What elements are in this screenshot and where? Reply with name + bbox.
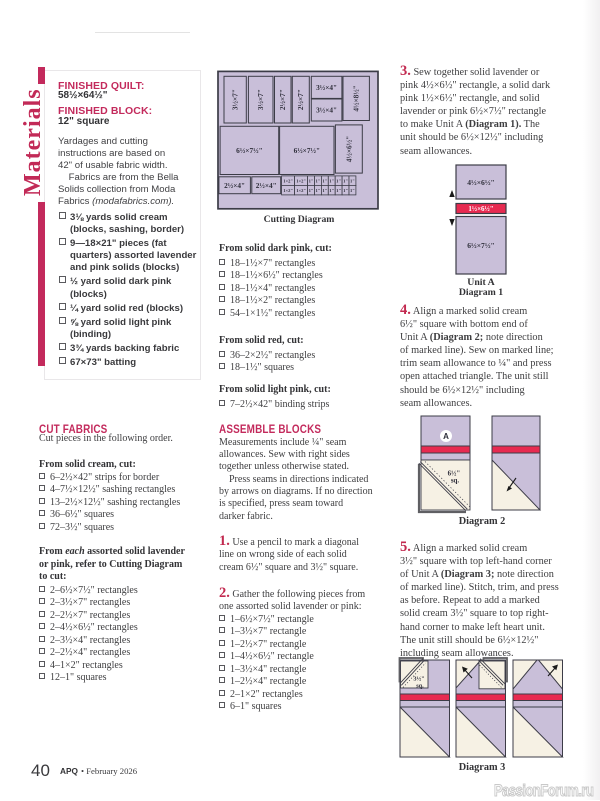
svg-text:6½×7½": 6½×7½" [236, 146, 262, 155]
svg-text:2½×7": 2½×7" [278, 89, 287, 110]
svg-text:1": 1" [315, 179, 320, 184]
svg-text:1": 1" [350, 188, 355, 193]
svg-text:1": 1" [322, 188, 327, 193]
svg-text:2½×7": 2½×7" [296, 89, 305, 110]
svg-text:2½×4": 2½×4" [224, 181, 245, 190]
svg-text:4½×6½": 4½×6½" [467, 178, 495, 187]
svg-text:A: A [443, 432, 449, 441]
svg-text:1": 1" [329, 188, 334, 193]
svg-text:sq.: sq. [451, 477, 460, 485]
svg-text:4½×8½": 4½×8½" [352, 85, 361, 111]
svg-text:3½×7": 3½×7" [256, 89, 265, 110]
svg-text:1": 1" [322, 179, 327, 184]
svg-text:sq.: sq. [416, 682, 424, 689]
svg-text:3½×4": 3½×4" [316, 83, 337, 92]
svg-text:1×2": 1×2" [296, 179, 306, 184]
svg-text:1": 1" [350, 179, 355, 184]
svg-text:1": 1" [309, 188, 314, 193]
svg-text:1": 1" [309, 179, 314, 184]
svg-text:2½×4": 2½×4" [256, 181, 277, 190]
svg-text:1½×6½": 1½×6½" [468, 205, 493, 213]
svg-text:1×2": 1×2" [283, 179, 293, 184]
svg-text:1": 1" [343, 179, 348, 184]
svg-text:1": 1" [343, 188, 348, 193]
svg-text:1": 1" [336, 188, 341, 193]
svg-text:3½×4": 3½×4" [316, 106, 337, 115]
svg-text:1×2": 1×2" [283, 188, 293, 193]
svg-text:6½×7½": 6½×7½" [467, 241, 495, 250]
svg-text:1": 1" [315, 188, 320, 193]
svg-text:6½×7½": 6½×7½" [294, 146, 320, 155]
svg-text:3½×7": 3½×7" [231, 89, 240, 110]
svg-text:1": 1" [329, 179, 334, 184]
svg-text:1×2": 1×2" [296, 188, 306, 193]
svg-text:1": 1" [336, 179, 341, 184]
svg-text:4½×6½": 4½×6½" [344, 136, 353, 162]
